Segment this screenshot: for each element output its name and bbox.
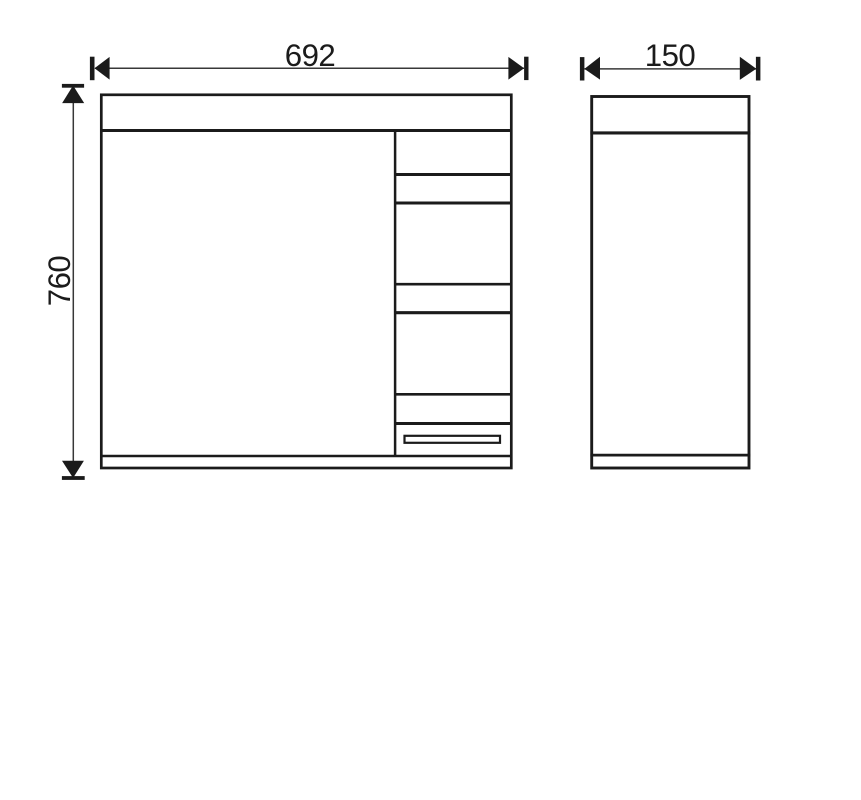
svg-text:760: 760 [42, 256, 77, 307]
svg-text:150: 150 [645, 38, 696, 73]
